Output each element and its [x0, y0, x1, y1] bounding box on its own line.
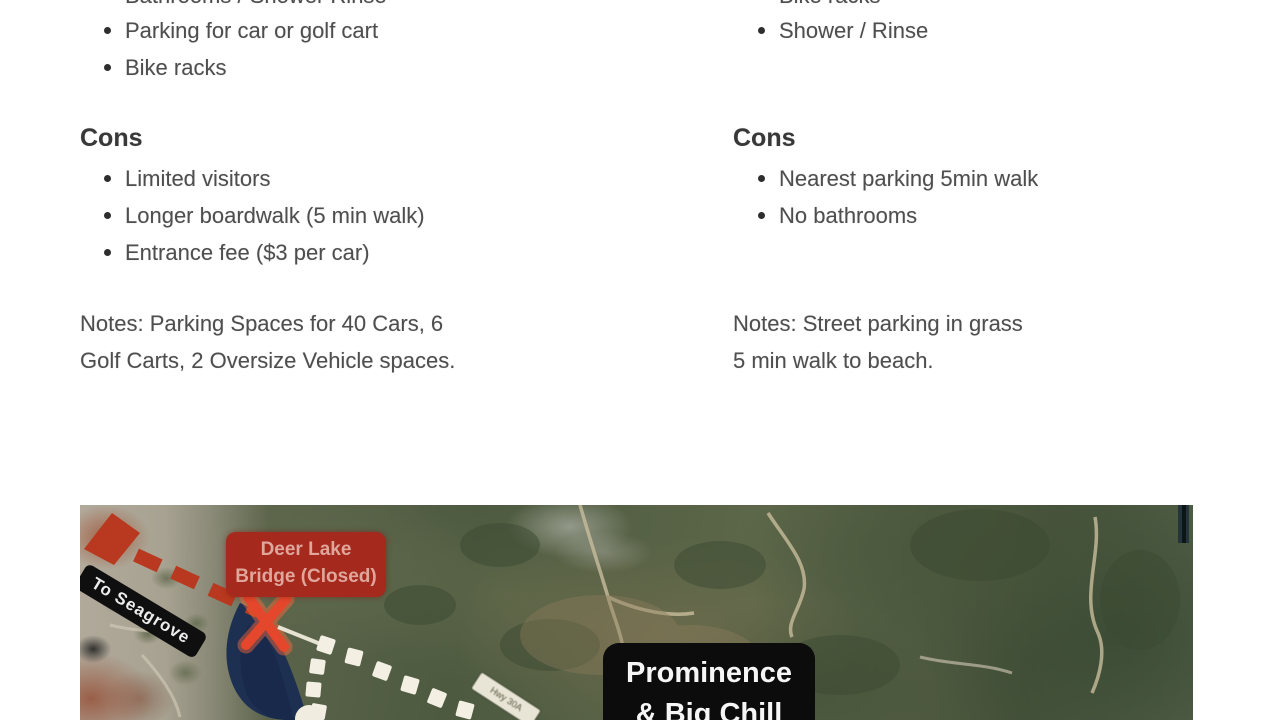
- destination-label-line: Prominence: [626, 657, 792, 689]
- cons-item: No bathrooms: [733, 197, 1038, 234]
- cons-heading: Cons: [733, 124, 796, 153]
- cons-item: Limited visitors: [80, 160, 425, 197]
- map-image: Deer LakeBridge (Closed) To Seagrove Pro…: [80, 505, 1193, 720]
- cons-item: Nearest parking 5min walk: [733, 160, 1038, 197]
- destination-label-line: & Big Chill: [636, 698, 783, 720]
- cons-list: Nearest parking 5min walk No bathrooms: [733, 160, 1038, 234]
- notes-line: Notes: Parking Spaces for 40 Cars, 6: [80, 311, 443, 336]
- pros-item-partial: Bike racks: [779, 0, 880, 9]
- cons-heading: Cons: [80, 124, 143, 153]
- pros-list: Parking for car or golf cart Bike racks: [80, 12, 378, 86]
- notes-line: Notes: Street parking in grass: [733, 311, 1023, 336]
- cons-list: Limited visitors Longer boardwalk (5 min…: [80, 160, 425, 271]
- notes-text: Notes: Street parking in grass5 min walk…: [733, 305, 1023, 379]
- pros-list: Shower / Rinse: [733, 12, 928, 49]
- notes-line: 5 min walk to beach.: [733, 348, 934, 373]
- bridge-label-line: Bridge (Closed): [235, 566, 376, 587]
- notes-text: Notes: Parking Spaces for 40 Cars, 6Golf…: [80, 305, 455, 379]
- pros-item: Shower / Rinse: [733, 12, 928, 49]
- bridge-closed-label: Deer LakeBridge (Closed): [226, 532, 386, 597]
- pros-item-partial: Bathrooms / Shower Rinse: [125, 0, 387, 9]
- map-edge-sliver: [1178, 505, 1189, 543]
- cons-item: Entrance fee ($3 per car): [80, 234, 425, 271]
- document-page: Bathrooms / Shower Rinse Parking for car…: [0, 0, 1280, 720]
- red-arrow-marker: [84, 513, 140, 565]
- pros-item: Bike racks: [80, 49, 378, 86]
- walking-path-dashes: [305, 635, 474, 720]
- destination-label: Prominence& Big Chill: [603, 643, 815, 720]
- pros-item: Parking for car or golf cart: [80, 12, 378, 49]
- bridge-label-line: Deer Lake: [261, 539, 352, 560]
- notes-line: Golf Carts, 2 Oversize Vehicle spaces.: [80, 348, 455, 373]
- cons-item: Longer boardwalk (5 min walk): [80, 197, 425, 234]
